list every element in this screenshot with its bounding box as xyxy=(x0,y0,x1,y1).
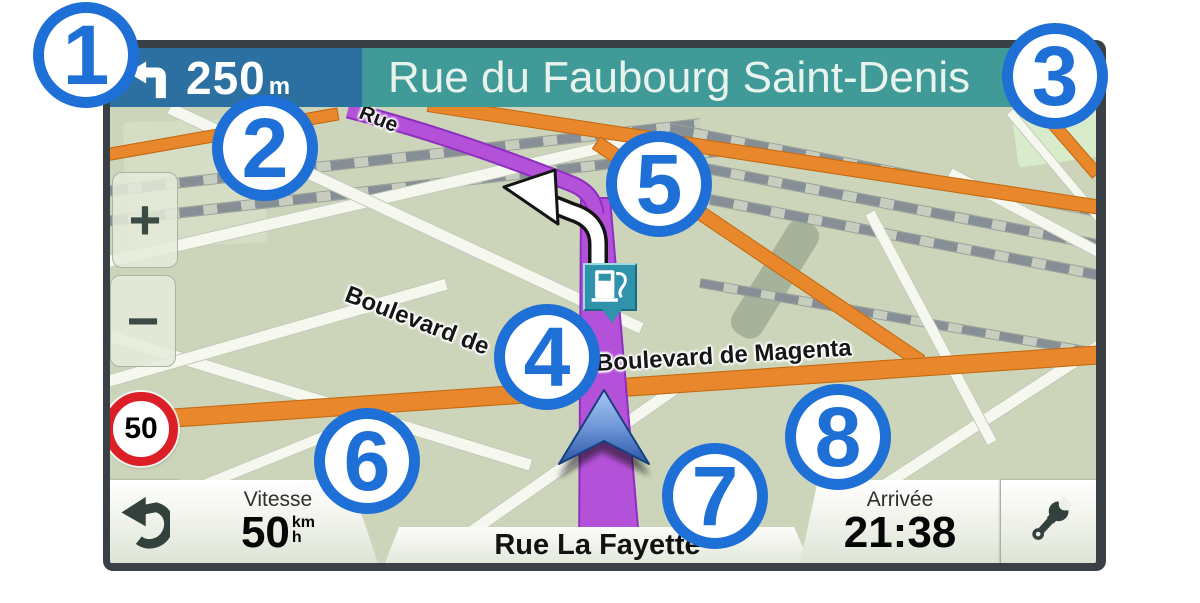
arrival-panel[interactable]: Arrivée 21:38 xyxy=(800,480,1000,563)
wrench-icon xyxy=(1022,495,1076,549)
next-street-banner[interactable]: Rue du Faubourg Saint-Denis xyxy=(362,48,1096,107)
speed-value: 50 xyxy=(241,511,290,555)
callout-8: 8 xyxy=(785,384,891,490)
callout-7: 7 xyxy=(662,443,768,549)
figure: Rue Boulevard de Boulevard de Magenta + … xyxy=(0,0,1200,603)
speed-limit-value: 50 xyxy=(124,412,157,446)
zoom-out-button[interactable]: − xyxy=(110,275,176,367)
arrival-time: 21:38 xyxy=(844,511,957,555)
callout-5: 5 xyxy=(606,131,712,237)
callout-1: 1 xyxy=(33,2,139,108)
next-street-name: Rue du Faubourg Saint-Denis xyxy=(388,53,970,103)
speed-readout: 50 km h xyxy=(241,511,315,555)
next-turn-panel[interactable]: 250 m xyxy=(110,48,362,107)
route-turn-arrow-icon xyxy=(504,170,558,224)
fuel-station-marker[interactable] xyxy=(583,263,637,311)
plus-icon: + xyxy=(129,192,162,248)
callout-3: 3 xyxy=(1002,23,1108,129)
callout-6: 6 xyxy=(314,408,420,514)
back-arrow-icon xyxy=(118,494,170,550)
current-street-name: Rue La Fayette xyxy=(494,529,700,562)
callout-2: 2 xyxy=(212,95,318,201)
minus-icon: − xyxy=(127,293,160,349)
back-button[interactable] xyxy=(110,480,179,563)
tools-button[interactable] xyxy=(1000,480,1096,563)
callout-4: 4 xyxy=(494,304,600,410)
speed-unit-bottom: h xyxy=(292,530,315,545)
fuel-pump-icon xyxy=(585,265,635,307)
speed-unit-top: km xyxy=(292,515,315,530)
zoom-in-button[interactable]: + xyxy=(112,172,178,268)
